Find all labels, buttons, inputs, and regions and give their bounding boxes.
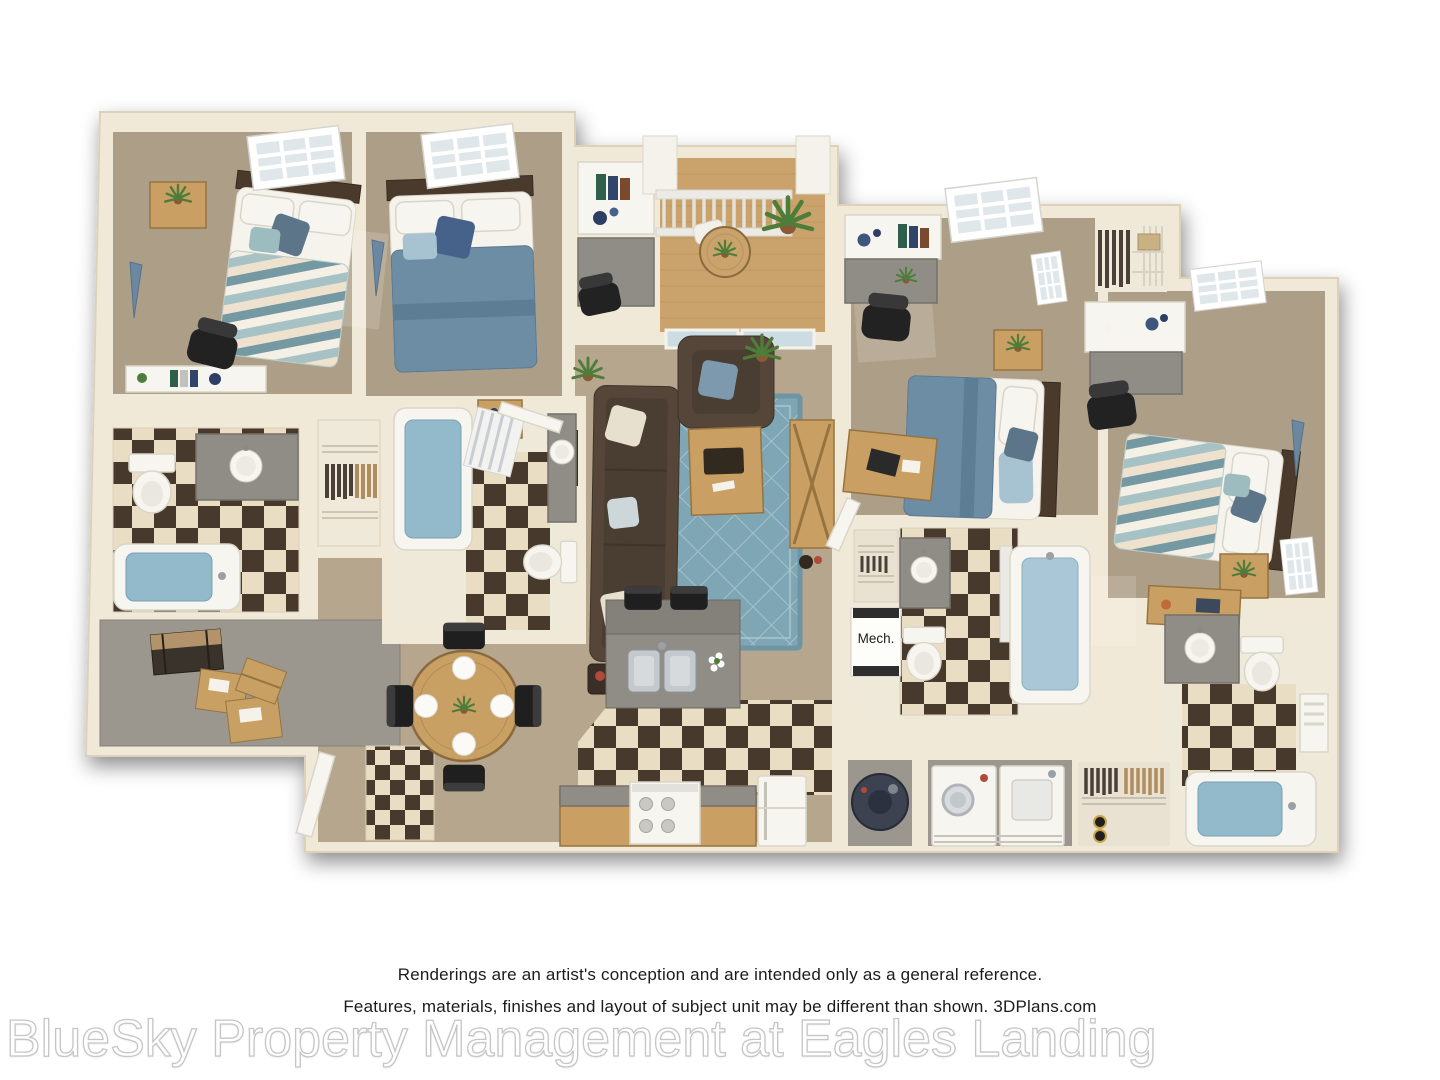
nightstand xyxy=(994,330,1042,370)
floor-plan-page: Mech. BlueSky Property Management at Eag… xyxy=(0,0,1440,1080)
bar-stool xyxy=(670,586,707,610)
toilet xyxy=(903,627,944,680)
dining-chair xyxy=(443,765,485,792)
column xyxy=(796,136,830,194)
bathtub xyxy=(114,544,240,610)
stove xyxy=(630,782,700,844)
desk-ledge xyxy=(126,366,266,392)
desk-nook xyxy=(845,215,941,303)
desk xyxy=(843,430,937,501)
bed-1 xyxy=(216,170,361,368)
window xyxy=(1190,261,1266,312)
kitchen-island xyxy=(606,600,740,708)
floor-plan-render xyxy=(0,0,1440,1080)
toilet xyxy=(129,454,175,513)
bed-2 xyxy=(387,175,540,372)
console-table xyxy=(790,420,834,569)
window xyxy=(1280,537,1318,595)
dining-chair xyxy=(387,685,414,727)
bar-stool xyxy=(624,586,661,610)
toilet xyxy=(524,541,577,582)
bathroom-4-checker xyxy=(1182,684,1296,786)
dining-table xyxy=(409,651,519,761)
window xyxy=(421,124,519,189)
kitchen-counter xyxy=(560,782,756,846)
bathtub xyxy=(394,408,472,550)
desk-nook xyxy=(575,162,654,318)
towel-shelf xyxy=(1300,694,1328,752)
window xyxy=(247,126,345,191)
desk-nook xyxy=(1085,302,1185,394)
disclaimer-line-2: Features, materials, finishes and layout… xyxy=(0,997,1440,1017)
nightstand xyxy=(150,182,206,228)
bathtub xyxy=(1186,772,1316,846)
dining-chair xyxy=(515,685,542,727)
bathtub xyxy=(1000,546,1090,704)
water-heater xyxy=(852,774,908,830)
mech-closet-label: Mech. xyxy=(851,631,901,646)
bathroom-2-checker xyxy=(466,452,550,630)
bed-4 xyxy=(1113,431,1300,571)
patio-table xyxy=(700,227,750,277)
storage-trunk xyxy=(150,629,223,675)
refrigerator xyxy=(758,776,806,846)
linen-closet xyxy=(854,530,898,602)
toilet xyxy=(1241,637,1283,691)
coffee-table xyxy=(689,427,764,515)
watermark-text: BlueSky Property Management at Eagles La… xyxy=(6,1010,1156,1070)
dining-chair xyxy=(443,623,485,650)
disclaimer-line-1: Renderings are an artist's conception an… xyxy=(0,965,1440,985)
washer xyxy=(932,766,996,846)
column xyxy=(643,136,677,194)
hall-closet xyxy=(318,420,380,546)
dryer xyxy=(1000,766,1064,846)
vanity-sink xyxy=(900,538,950,608)
vanity-sink xyxy=(196,434,298,500)
entry-checker-floor xyxy=(366,746,434,840)
window xyxy=(945,178,1043,243)
vanity-sink xyxy=(1165,615,1239,683)
